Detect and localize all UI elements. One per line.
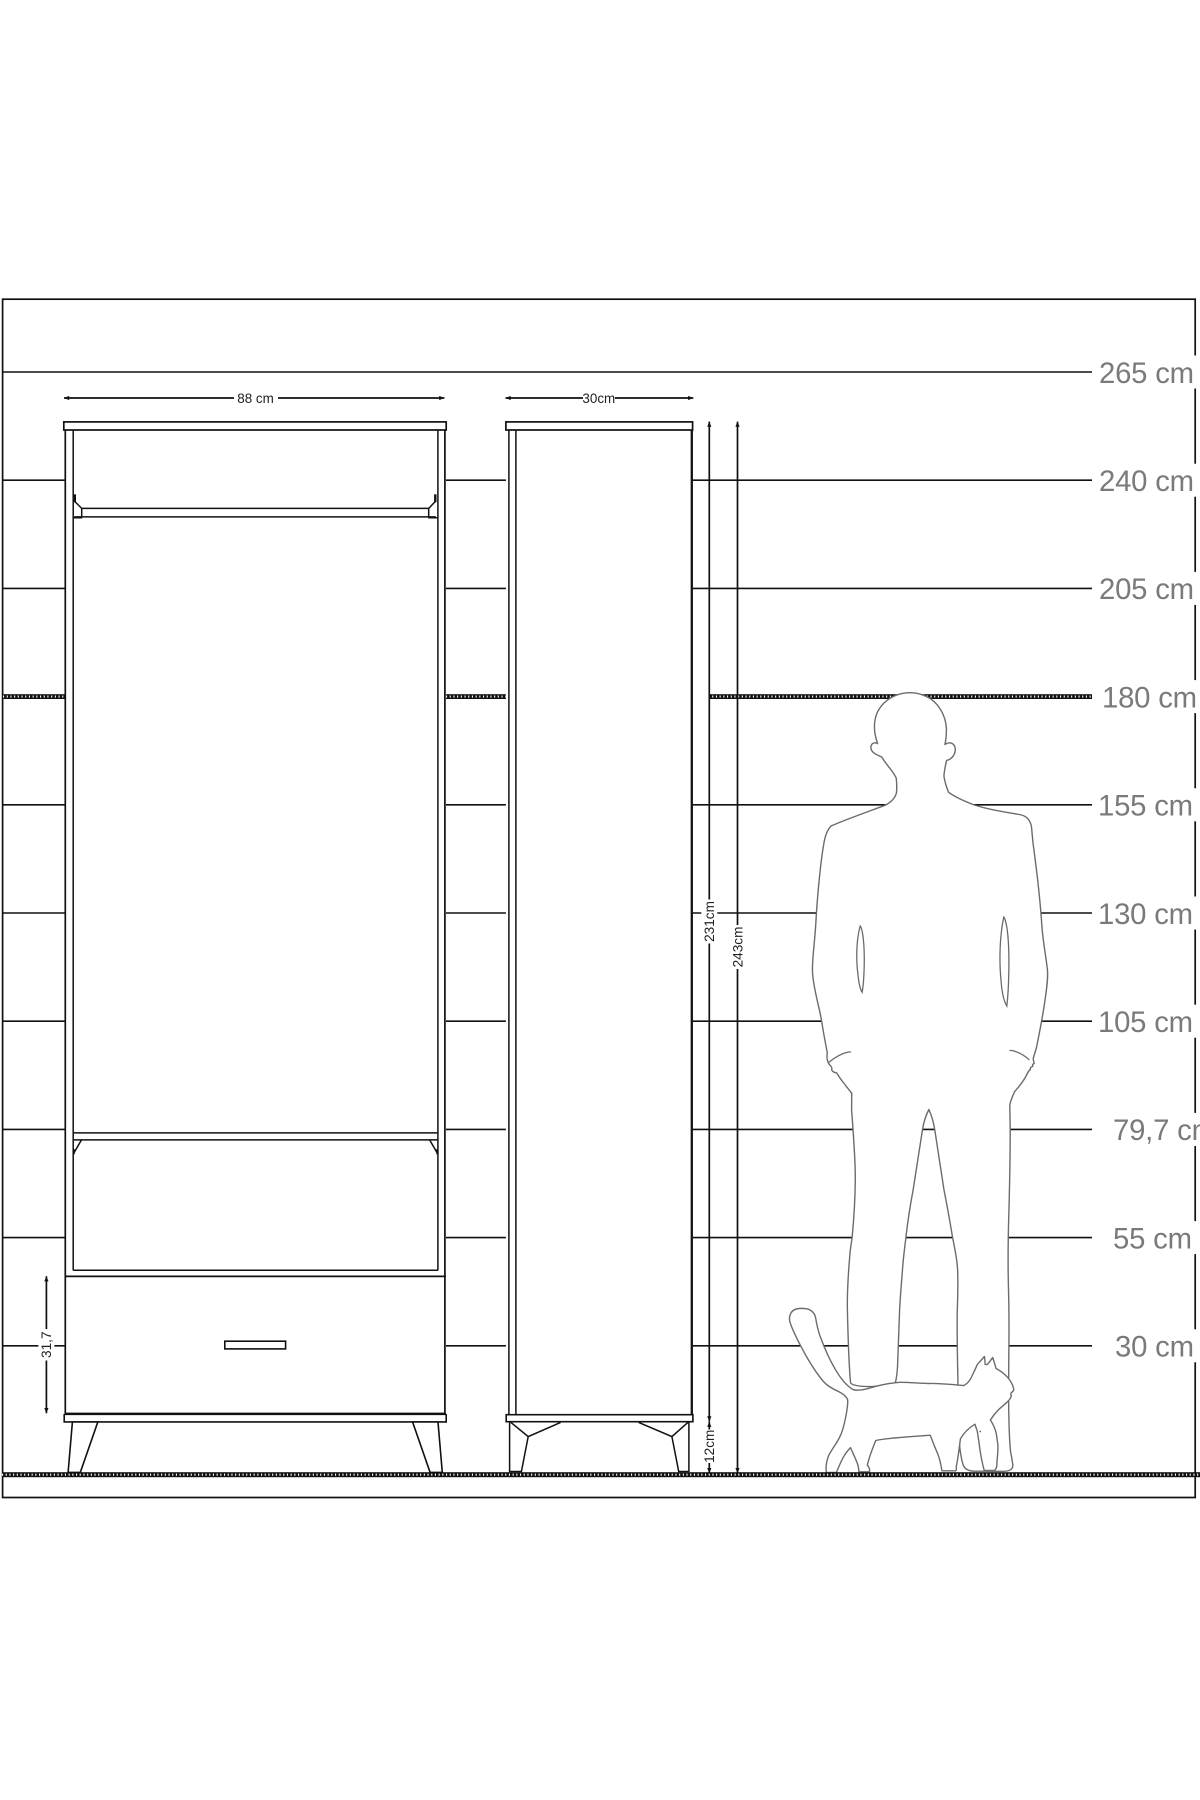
svg-text:231cm: 231cm bbox=[702, 901, 717, 942]
svg-text:155 cm: 155 cm bbox=[1098, 790, 1193, 823]
svg-text:31,7: 31,7 bbox=[39, 1331, 54, 1357]
svg-text:180 cm: 180 cm bbox=[1102, 681, 1197, 714]
svg-text:130 cm: 130 cm bbox=[1098, 898, 1193, 931]
svg-text:205 cm: 205 cm bbox=[1099, 573, 1194, 606]
svg-text:79,7 cm: 79,7 cm bbox=[1113, 1114, 1200, 1147]
svg-text:265 cm: 265 cm bbox=[1099, 357, 1194, 390]
svg-text:12cm: 12cm bbox=[702, 1430, 717, 1463]
svg-text:105 cm: 105 cm bbox=[1098, 1006, 1193, 1039]
svg-text:30 cm: 30 cm bbox=[1115, 1331, 1194, 1364]
svg-text:88 cm: 88 cm bbox=[237, 391, 273, 406]
svg-text:30cm: 30cm bbox=[582, 391, 615, 406]
svg-text:243cm: 243cm bbox=[730, 927, 745, 968]
svg-text:240 cm: 240 cm bbox=[1099, 465, 1194, 498]
svg-text:55 cm: 55 cm bbox=[1113, 1222, 1192, 1255]
